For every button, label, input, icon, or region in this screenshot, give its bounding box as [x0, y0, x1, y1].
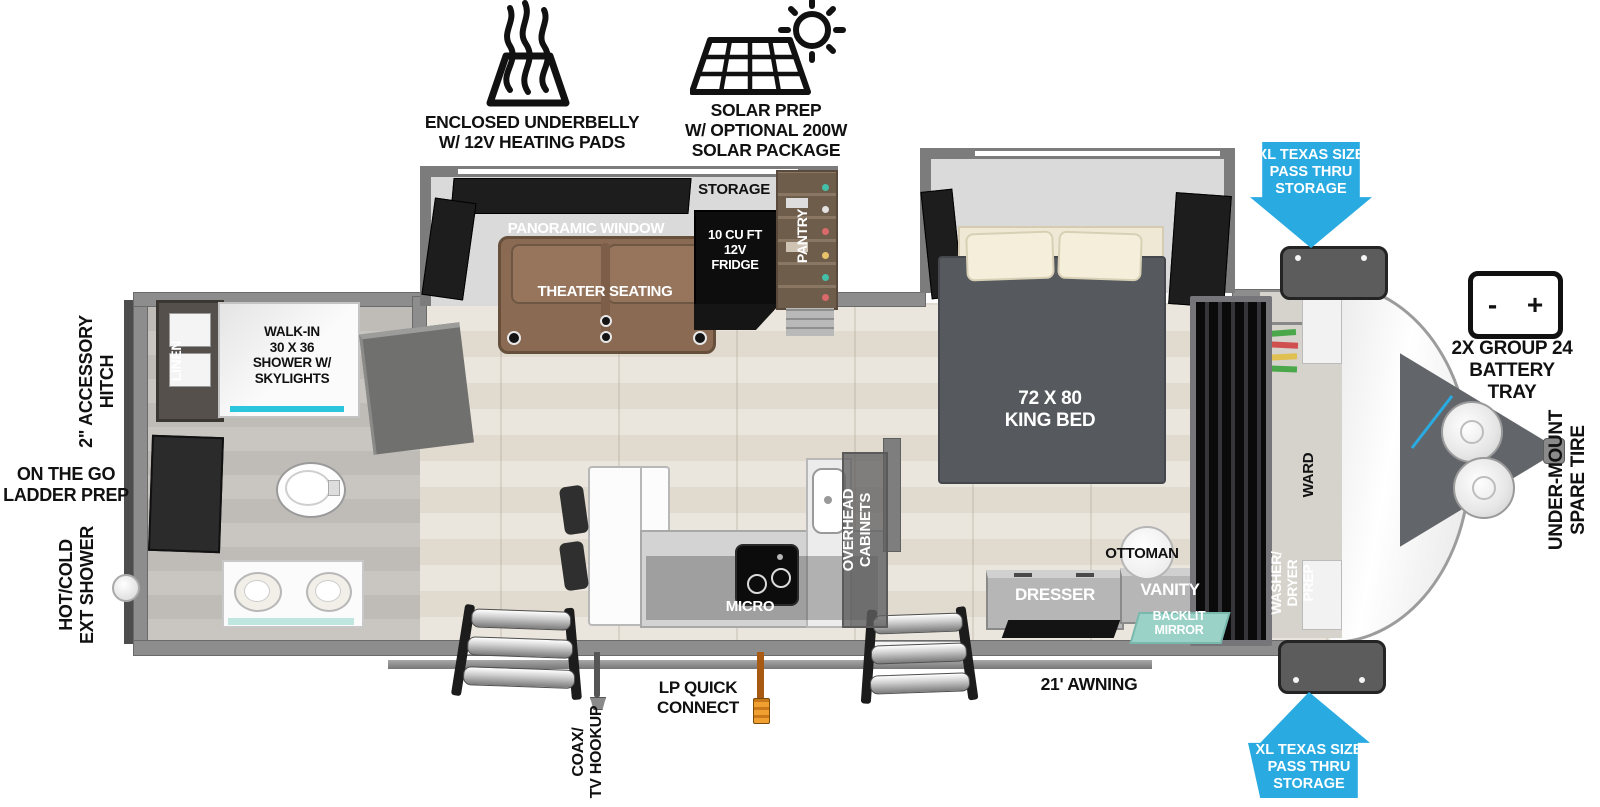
storage-label: STORAGE: [690, 181, 778, 198]
vanity-accent-strip: [228, 618, 354, 625]
theater-seating-label: THEATER SEATING: [505, 283, 705, 300]
propane-tank-1: [1441, 401, 1503, 463]
panoramic-window: [450, 178, 691, 214]
lp-hose: [757, 652, 764, 700]
king-bed-label: 72 X 80 KING BED: [950, 388, 1150, 432]
heating-pads-icon: [468, 0, 586, 110]
coax-label: COAX/ TV HOOKUP: [570, 698, 607, 806]
entry-steps-rear: [454, 600, 583, 704]
slide-top-highlight: [458, 169, 798, 174]
pass-thru-door-bottom: [1278, 640, 1386, 694]
bed-slide-top-highlight: [975, 151, 1220, 156]
vanity-label: VANITY: [1124, 580, 1216, 600]
toilet: [276, 462, 342, 514]
solar-label: SOLAR PREP W/ OPTIONAL 200W SOLAR PACKAG…: [616, 100, 916, 160]
king-bed: [938, 256, 1166, 484]
dresser-label: DRESSER: [992, 585, 1118, 605]
lp-connect-label: LP QUICK CONNECT: [644, 678, 752, 717]
pass-thru-top-label: XL TEXAS SIZE PASS THRU STORAGE: [1258, 142, 1365, 198]
micro-label: MICRO: [705, 598, 795, 615]
battery-minus: -: [1488, 289, 1497, 321]
battery-plus: +: [1527, 289, 1543, 321]
ladder-prep-label: ON THE GO LADDER PREP: [0, 464, 132, 505]
linen-cabinet: [156, 300, 224, 422]
pass-thru-arrow-down-icon: XL TEXAS SIZE PASS THRU STORAGE: [1250, 142, 1372, 248]
pillow-right: [1057, 231, 1143, 282]
propane-tank-2: [1453, 457, 1515, 519]
rear-wall: [133, 292, 148, 656]
ottoman-label: OTTOMAN: [1092, 545, 1192, 562]
ext-shower-label: HOT/COLD EXT SHOWER: [56, 512, 97, 658]
floorplan-diagram: ENCLOSED UNDERBELLY W/ 12V HEATING PADS …: [0, 0, 1600, 807]
linen-label: LINEN: [168, 324, 184, 398]
coax-cable: [594, 652, 600, 698]
cooktop: [735, 544, 799, 606]
bedroom-tv: [1002, 620, 1121, 638]
accessory-hitch-label: 2" ACCESSORY HITCH: [76, 298, 117, 465]
pass-thru-arrow-up-icon: XL TEXAS SIZE PASS THRU STORAGE: [1248, 692, 1370, 798]
top-wall-mid: [834, 292, 926, 307]
lp-nozzle: [753, 698, 770, 724]
bath-tv-panel: [148, 435, 224, 553]
kitchen-island-arm: [640, 466, 670, 540]
angled-wardrobe: [359, 322, 474, 454]
solar-prep-icon: [690, 0, 850, 102]
fridge-label: 10 CU FT 12V FRIDGE: [696, 228, 774, 273]
pantry-steps: [786, 308, 834, 336]
battery-icon: - +: [1468, 271, 1563, 339]
backlit-mirror-label: BACKLIT MIRROR: [1136, 609, 1222, 638]
overhead-cabinets-label: OVERHEAD CABINETS: [840, 468, 875, 592]
panoramic-window-label: PANORAMIC WINDOW: [468, 220, 704, 237]
shower-accent-strip: [230, 406, 344, 412]
pillow-left: [965, 230, 1055, 281]
bed-window-right: [1168, 192, 1232, 308]
kitchen-island: [588, 466, 644, 626]
spare-tire-label: UNDER-MOUNT SPARE TIRE: [1546, 392, 1590, 568]
shower-label: WALK-IN 30 X 36 SHOWER W/ SKYLIGHTS: [232, 324, 352, 386]
pass-thru-bottom-label: XL TEXAS SIZE PASS THRU STORAGE: [1256, 692, 1363, 793]
awning-label: 21' AWNING: [1014, 674, 1164, 694]
ward-label: WARD: [1300, 440, 1317, 510]
pass-thru-door-top: [1280, 246, 1388, 300]
ext-shower-knob: [112, 574, 140, 602]
washer-dryer-label: WASHER/ DRYER PREP: [1268, 532, 1316, 634]
pantry-label: PANTRY: [794, 200, 810, 272]
